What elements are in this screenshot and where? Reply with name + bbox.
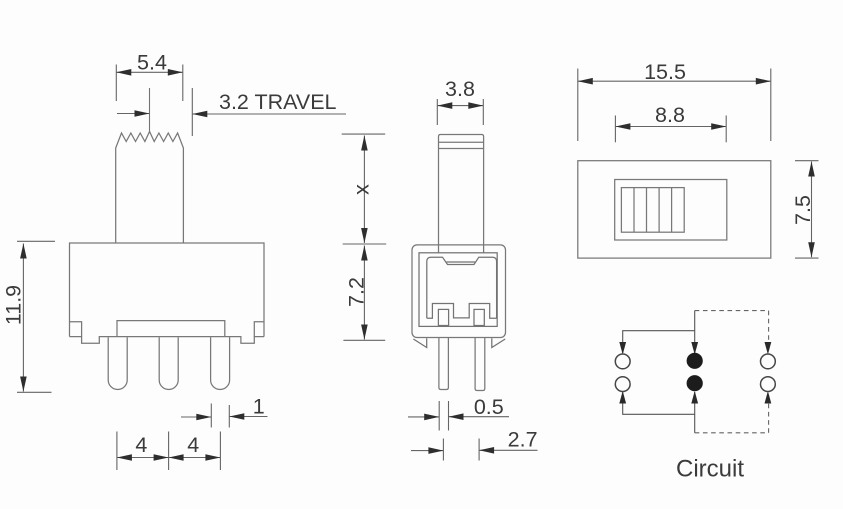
svg-text:5.4: 5.4 (137, 51, 167, 75)
svg-text:1: 1 (253, 395, 265, 419)
svg-text:15.5: 15.5 (644, 60, 686, 84)
svg-text:11.9: 11.9 (2, 285, 26, 325)
svg-text:Circuit: Circuit (676, 456, 744, 483)
svg-text:4: 4 (135, 433, 147, 457)
svg-text:2.7: 2.7 (508, 428, 538, 452)
svg-text:8.8: 8.8 (655, 103, 685, 127)
svg-text:3.2 TRAVEL: 3.2 TRAVEL (219, 90, 337, 114)
svg-text:7.5: 7.5 (791, 195, 815, 225)
svg-text:4: 4 (187, 433, 199, 457)
svg-text:0.5: 0.5 (474, 395, 504, 419)
svg-text:x: x (349, 184, 373, 195)
svg-text:7.2: 7.2 (345, 277, 369, 307)
svg-text:3.8: 3.8 (445, 77, 475, 101)
